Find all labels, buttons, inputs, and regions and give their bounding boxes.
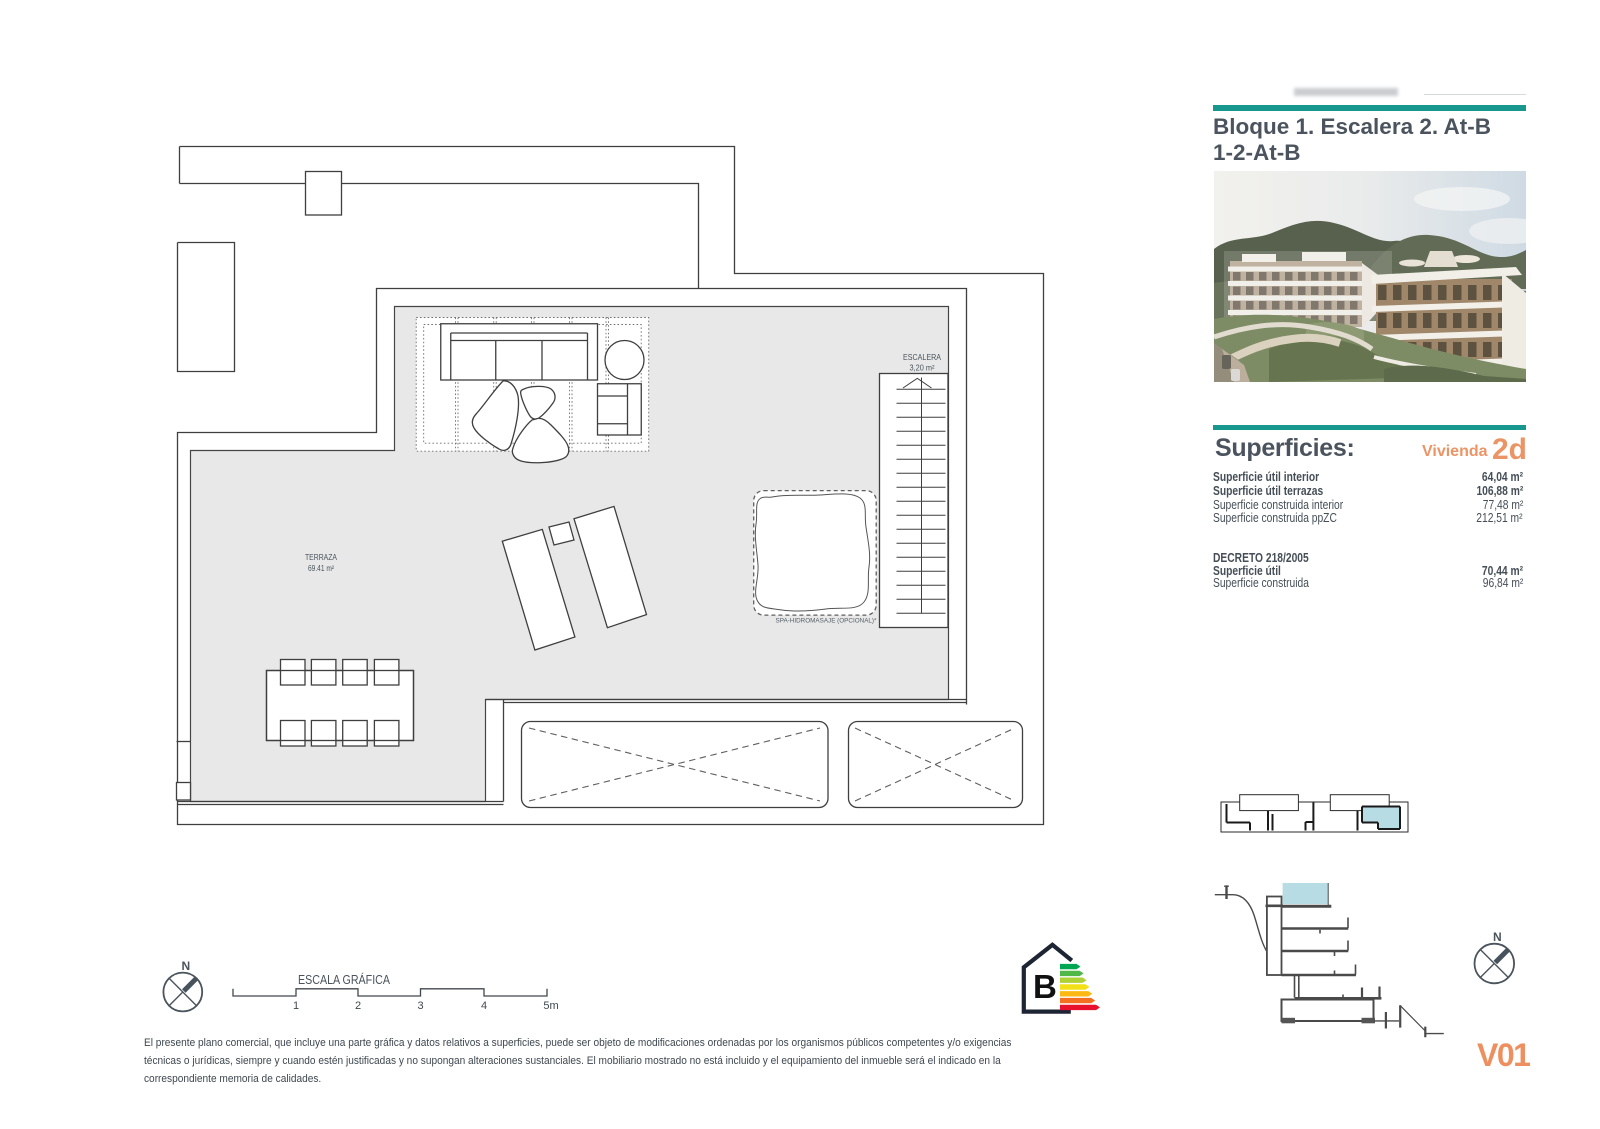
svg-text:N: N — [1493, 930, 1502, 944]
svg-text:69.41 m²: 69.41 m² — [308, 564, 334, 573]
svg-text:4: 4 — [481, 1000, 487, 1012]
svg-text:ESCALERA: ESCALERA — [903, 353, 941, 362]
svg-text:B: B — [1033, 968, 1057, 1005]
svg-text:2: 2 — [355, 1000, 361, 1012]
svg-text:5m: 5m — [543, 1000, 558, 1012]
svg-text:1: 1 — [293, 1000, 299, 1012]
svg-text:N: N — [181, 959, 190, 973]
svg-text:3,20 m²: 3,20 m² — [910, 364, 935, 373]
svg-text:TERRAZA: TERRAZA — [305, 553, 337, 562]
svg-text:SPA-HIDROMASAJE (OPCIONAL)*: SPA-HIDROMASAJE (OPCIONAL)* — [776, 618, 877, 625]
svg-text:ESCALA GRÁFICA: ESCALA GRÁFICA — [298, 972, 390, 987]
svg-text:3: 3 — [417, 1000, 423, 1012]
